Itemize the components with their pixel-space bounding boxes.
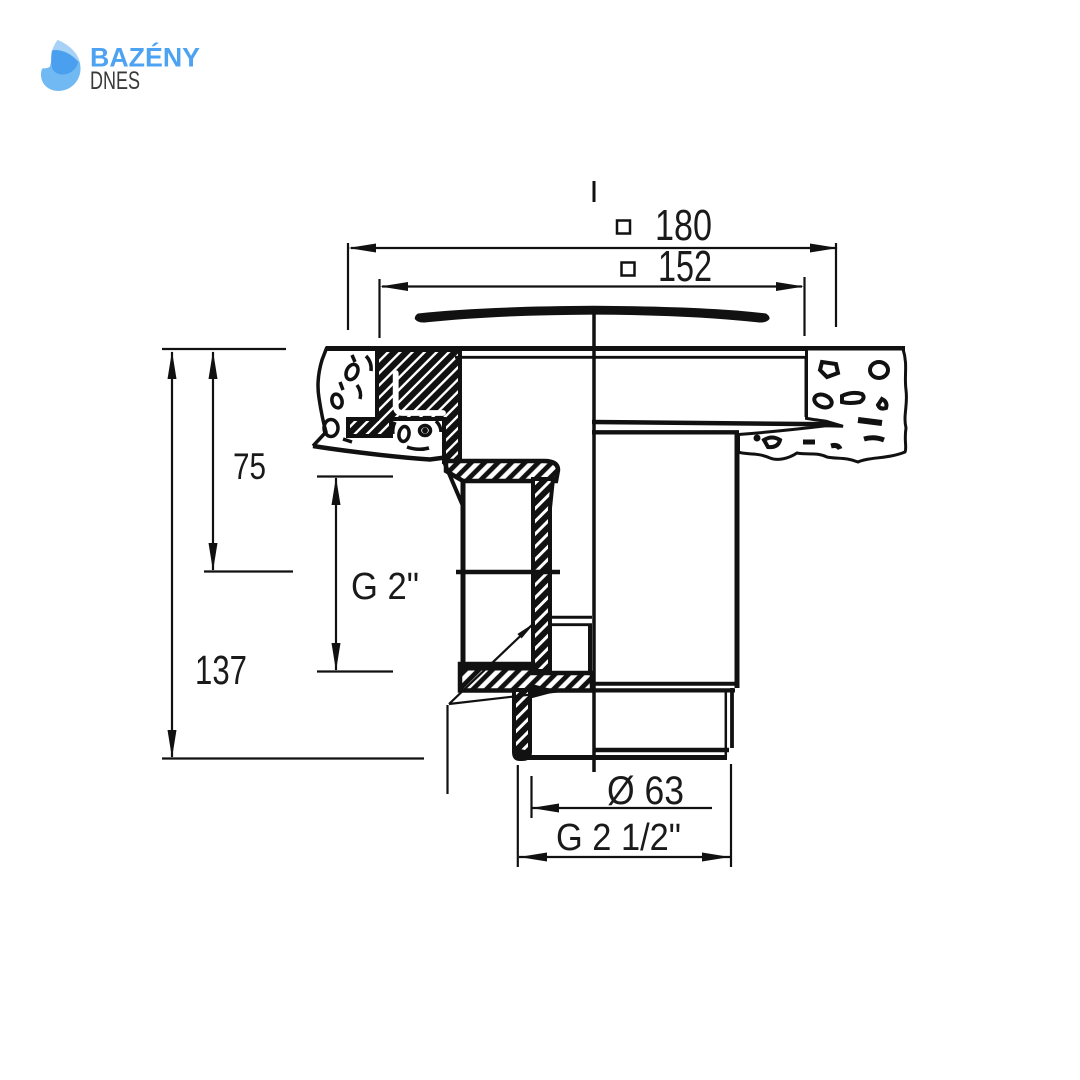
svg-text:G 2": G 2": [351, 566, 419, 608]
svg-text:DNES: DNES: [90, 67, 140, 95]
svg-text:G 2 1/2": G 2 1/2": [556, 817, 681, 859]
svg-text:137: 137: [195, 647, 247, 693]
svg-text:152: 152: [658, 242, 712, 291]
svg-text:75: 75: [233, 446, 266, 487]
svg-text:Ø 63: Ø 63: [607, 769, 684, 813]
